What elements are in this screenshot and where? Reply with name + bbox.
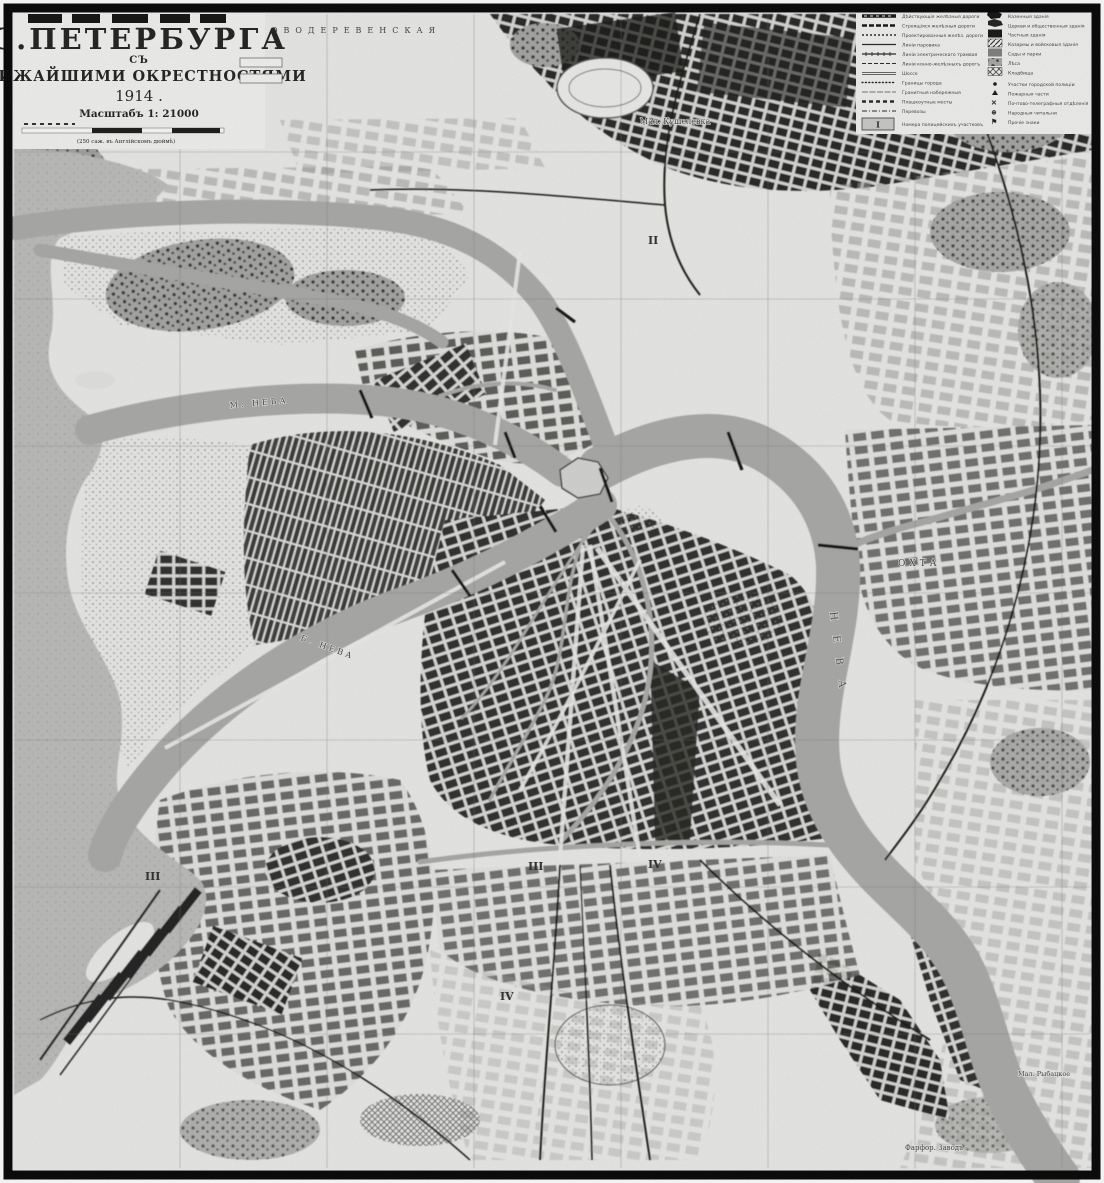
scan-grain <box>13 13 1091 1170</box>
map-canvas: НОВОДЕРЕВЕНСКАЯ Мал. Кушелевка ОХТА Н Е … <box>0 0 1104 1183</box>
map-screenshot: НОВОДЕРЕВЕНСКАЯ Мал. Кушелевка ОХТА Н Е … <box>0 0 1104 1183</box>
